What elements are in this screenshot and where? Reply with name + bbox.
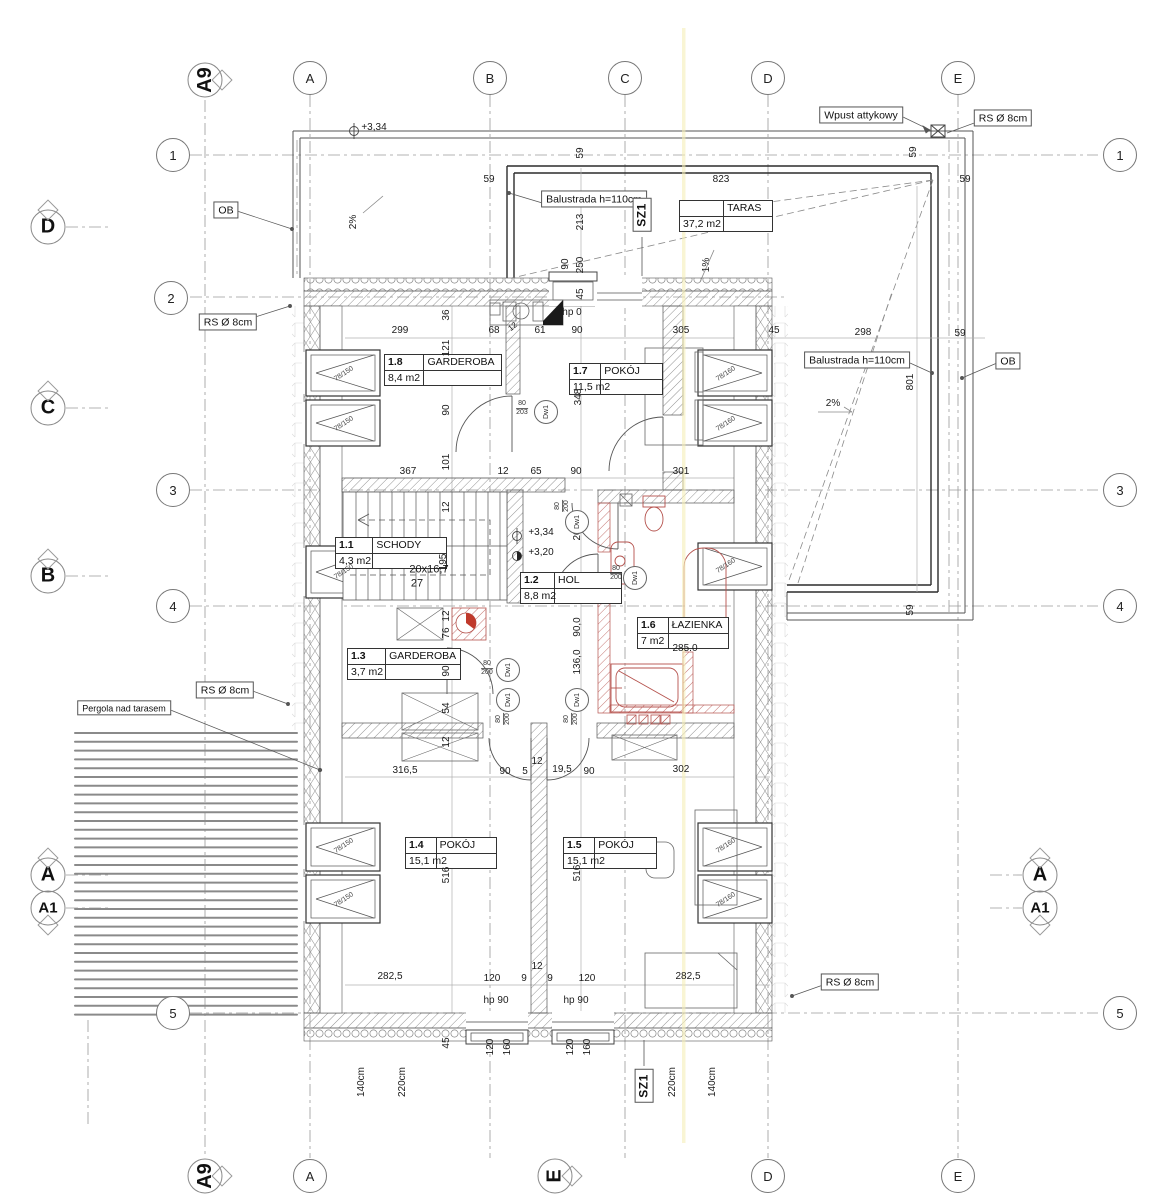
interior-walls <box>342 306 734 1013</box>
terrace-slope-lines <box>363 180 933 1066</box>
pergola-slats <box>75 733 297 1015</box>
floor-plan-canvas: ABCDEADE123451345DCBAA1AA1A9A9E1.8GARDER… <box>0 0 1156 1200</box>
fold-line <box>682 28 686 1143</box>
grid-lines <box>66 95 1098 1158</box>
bathroom-fixtures <box>611 496 726 724</box>
stairs <box>343 492 507 600</box>
floor-plan-drawing <box>0 0 1156 1200</box>
chimney <box>452 608 486 640</box>
